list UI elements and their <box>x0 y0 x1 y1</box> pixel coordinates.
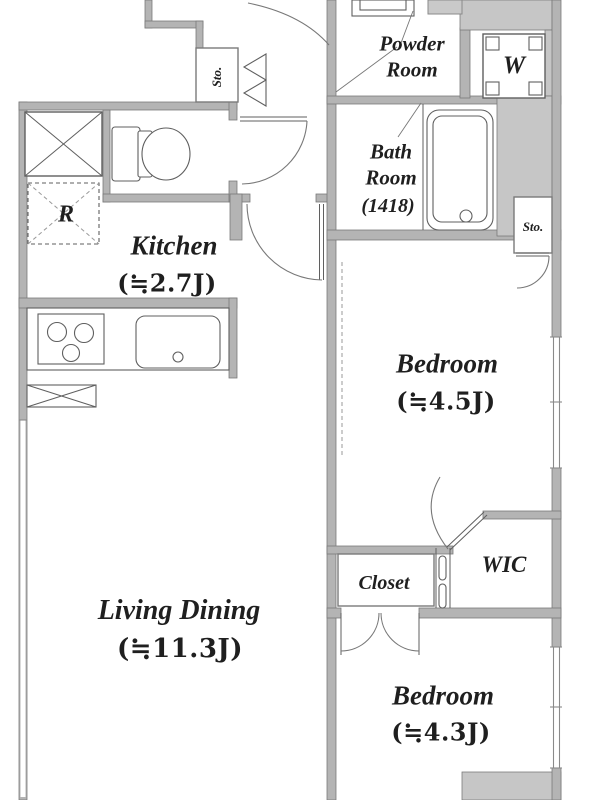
bath-room-size: (1418) <box>361 194 414 218</box>
bedroom-main-size: (≒4.5J) <box>396 386 495 415</box>
shaft-x-icon <box>25 112 102 176</box>
bedroom-second-size: (≒4.3J) <box>391 717 490 746</box>
entry-door-swing <box>248 3 329 45</box>
bedroom-second-label: Bedroom <box>392 680 494 713</box>
bifold-door-icon <box>244 54 266 106</box>
floor-plan-graphics <box>0 0 600 800</box>
living-door-swing <box>247 204 324 280</box>
window-bedroom-main <box>550 337 562 468</box>
storage-bedroom-label: Sto. <box>523 219 544 235</box>
toilet-icon <box>112 127 190 181</box>
kitchen-label: Kitchen <box>130 230 217 263</box>
living-dining-size: (≒11.3J) <box>117 634 243 666</box>
kitchen-size: (≒2.7J) <box>117 268 216 297</box>
storage-hall-label: Sto. <box>209 67 225 88</box>
bath-room-label: Bath Room <box>365 139 416 190</box>
hall-door-swing <box>240 117 307 184</box>
floor-plan: Powder Room W Bath Room (1418) Sto. Sto.… <box>0 0 600 800</box>
window-bedroom-second <box>550 647 562 768</box>
under-counter-vent-icon <box>27 385 96 407</box>
vanity-sink-icon <box>352 0 462 16</box>
living-dining-label: Living Dining <box>98 594 261 628</box>
bathtub-icon <box>423 104 493 230</box>
kitchen-counter <box>27 308 229 370</box>
washer-label: W <box>503 51 525 82</box>
powder-room-label: Powder Room <box>379 31 444 82</box>
storage-door-swing <box>516 253 549 288</box>
bedroom-main-label: Bedroom <box>396 348 498 381</box>
wic-label: WIC <box>482 551 527 579</box>
refrigerator-label: R <box>58 200 74 229</box>
wic-door-swing <box>431 477 487 550</box>
stove-icon <box>38 314 104 364</box>
closet-double-doors <box>341 613 419 655</box>
closet-label: Closet <box>358 571 409 595</box>
kitchen-sink-icon <box>136 316 220 368</box>
sliding-door-icon <box>436 548 450 608</box>
